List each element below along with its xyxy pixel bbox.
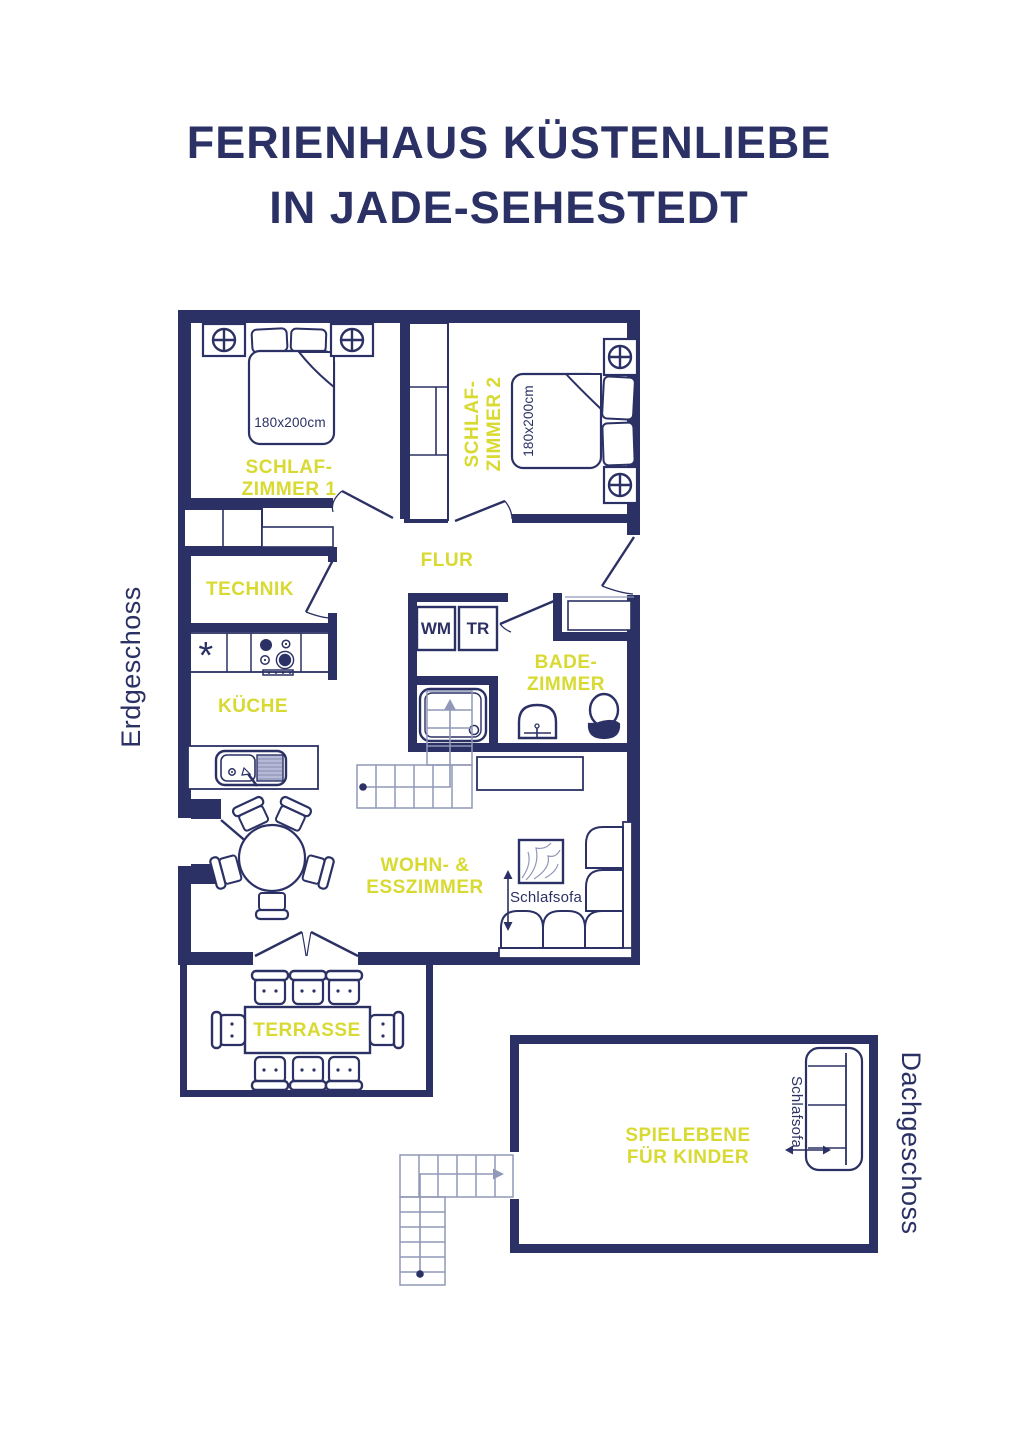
dining-table-icon (239, 825, 305, 891)
utility-door (306, 560, 333, 618)
floor-plan-page: FERIENHAUS KÜSTENLIEBE IN JADE-SEHESTEDT (0, 0, 1018, 1440)
label-play-area: SPIELEBENE FÜR KINDER (625, 1125, 750, 1169)
washbasin-icon (519, 705, 556, 738)
nightstand-lamp-icon (604, 339, 637, 375)
label-bedroom1: SCHLAF- ZIMMER 1 (242, 457, 337, 501)
label-bedroom2: SCHLAF- ZIMMER 2 (462, 377, 506, 472)
label-kitchen: KÜCHE (218, 696, 288, 718)
sink-icon (188, 746, 318, 789)
bathroom-niche-shelf (565, 597, 634, 630)
label-living-line2: ESSZIMMER (366, 877, 483, 898)
label-bedroom2-line2: ZIMMER 2 (484, 377, 505, 472)
stairs-attic (400, 1155, 513, 1285)
bed1-size-label: 180x200cm (254, 412, 326, 434)
label-terrace: TERRASSE (253, 1020, 360, 1042)
bedroom1-cabinet-icon (184, 509, 333, 547)
bedroom2-door (455, 501, 512, 521)
label-bathroom: BADE- ZIMMER (527, 652, 605, 696)
label-living-line1: WOHN- & (381, 855, 470, 876)
nightstand-lamp-icon (604, 467, 637, 503)
label-living-dining: WOHN- & ESSZIMMER (366, 855, 483, 899)
rug-icon (519, 840, 563, 883)
label-bathroom-line2: ZIMMER (527, 674, 605, 695)
attic-sofa-icon (806, 1048, 862, 1170)
bathroom-door (500, 601, 554, 632)
sideboard-icon (477, 757, 583, 790)
floor-label-ground: Erdgeschoss (120, 586, 142, 748)
bedroom1-door (332, 491, 393, 518)
fridge-symbol: * (198, 645, 213, 667)
label-play-area-line2: FÜR KINDER (627, 1147, 749, 1168)
bed2-size-label: 180x200cm (518, 385, 540, 457)
stove-icon (260, 639, 294, 675)
nightstand-lamp-icon (331, 324, 373, 356)
floor-plan-drawing (0, 0, 1018, 1440)
shower-icon (420, 689, 486, 741)
label-play-area-line1: SPIELEBENE (625, 1125, 750, 1146)
washer-label: WM (421, 618, 451, 640)
entrance-door-right (602, 537, 634, 594)
label-utility: TECHNIK (206, 579, 294, 601)
label-bathroom-line1: BADE- (535, 652, 598, 673)
dryer-label: TR (467, 618, 490, 640)
label-bedroom2-line1: SCHLAF- (462, 381, 483, 468)
nightstand-lamp-icon (203, 324, 245, 356)
wardrobe-icon (409, 323, 448, 520)
terrace-double-door (255, 932, 358, 956)
sofa-label-attic: Schlafsofa (785, 1076, 807, 1148)
floor-label-attic: Dachgeschoss (900, 1051, 922, 1234)
label-bedroom1-line1: SCHLAF- (246, 457, 333, 478)
sofa-label-living: Schlafsofa (510, 887, 582, 909)
toilet-icon (589, 694, 619, 738)
label-hallway: FLUR (421, 550, 474, 572)
label-bedroom1-line2: ZIMMER 1 (242, 479, 337, 500)
